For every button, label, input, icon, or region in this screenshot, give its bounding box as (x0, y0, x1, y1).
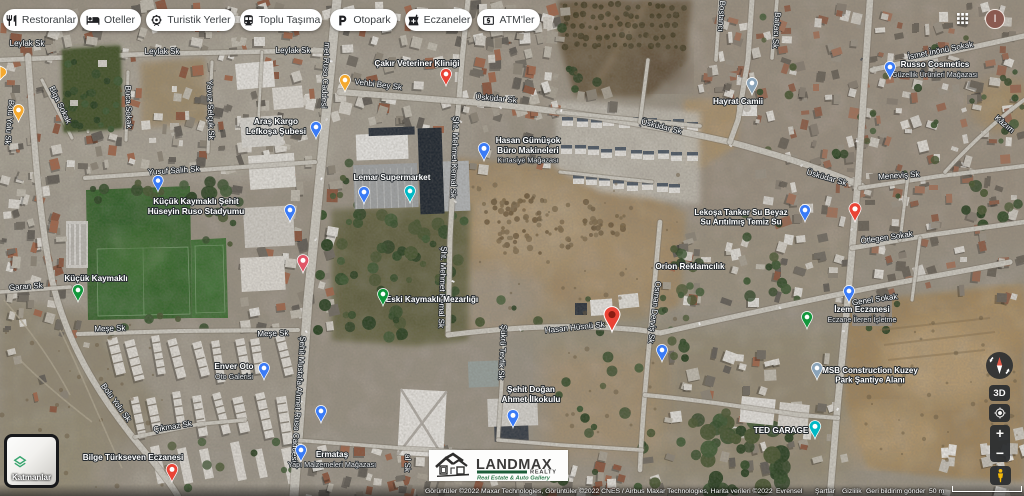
svg-text:Araş Kargo: Araş Kargo (254, 117, 298, 126)
svg-text:Lemar Supermarket: Lemar Supermarket (354, 173, 431, 182)
svg-text:Orion Reklamcılık: Orion Reklamcılık (655, 262, 725, 271)
svg-text:Oto Galerisi: Oto Galerisi (215, 372, 253, 381)
svg-text:Hasan Gümüşok: Hasan Gümüşok (496, 136, 561, 145)
svg-text:Lekoşa Tanker Su Beyaz: Lekoşa Tanker Su Beyaz (694, 208, 787, 217)
svg-text:Leylak Sk: Leylak Sk (145, 47, 181, 56)
svg-text:Şehit Doğan: Şehit Doğan (507, 385, 555, 394)
svg-text:Hüseyin Ruso Stadyumu: Hüseyin Ruso Stadyumu (148, 207, 244, 216)
svg-text:Kırtasiye Mağazası: Kırtasiye Mağazası (497, 156, 558, 165)
svg-text:Meşe Sk: Meşe Sk (257, 328, 289, 338)
svg-text:Russo Cosmetics: Russo Cosmetics (901, 60, 970, 69)
svg-text:Küçük Kaymaklı Şehit: Küçük Kaymaklı Şehit (153, 197, 239, 206)
svg-text:Meşe Sk: Meşe Sk (94, 323, 126, 333)
svg-text:Eski Kaymaklı Mezarlığı: Eski Kaymaklı Mezarlığı (386, 295, 478, 304)
svg-text:al Sk: al Sk (403, 454, 413, 473)
svg-text:Bilge Türkseven Eczanesi: Bilge Türkseven Eczanesi (83, 453, 184, 462)
svg-text:Çakır Veteriner Kliniği: Çakır Veteriner Kliniği (374, 59, 459, 68)
svg-text:Su Arıtılmış Temiz Su: Su Arıtılmış Temiz Su (701, 218, 782, 227)
svg-text:Büro Makineleri: Büro Makineleri (497, 146, 558, 155)
svg-text:Enver Oto: Enver Oto (214, 362, 253, 371)
svg-text:Güzellik Ürünleri Mağazası: Güzellik Ürünleri Mağazası (892, 70, 978, 79)
svg-text:Ahmet İlkokulu: Ahmet İlkokulu (502, 394, 561, 404)
svg-text:Lefkoşa Şubesi: Lefkoşa Şubesi (246, 127, 306, 136)
svg-text:Küçük Kaymaklı: Küçük Kaymaklı (64, 274, 127, 283)
svg-text:Park Şantiye Alanı: Park Şantiye Alanı (835, 376, 905, 385)
svg-text:TED GARAGE: TED GARAGE (754, 426, 809, 435)
svg-text:Ermataş: Ermataş (316, 450, 349, 459)
svg-text:Leylak Sk: Leylak Sk (276, 46, 312, 55)
svg-text:Hayrat Camii: Hayrat Camii (713, 97, 763, 106)
svg-text:Buca Sokak: Buca Sokak (123, 85, 134, 129)
svg-text:Real Estate & Auto Gallery: Real Estate & Auto Gallery (477, 476, 551, 482)
svg-text:Leylak Sk: Leylak Sk (10, 39, 46, 48)
svg-text:İzem Eczanesi: İzem Eczanesi (834, 304, 890, 314)
svg-text:MSB Construction Kuzey: MSB Construction Kuzey (822, 366, 918, 375)
svg-text:Eczane İlereri İşletme: Eczane İlereri İşletme (827, 315, 896, 324)
